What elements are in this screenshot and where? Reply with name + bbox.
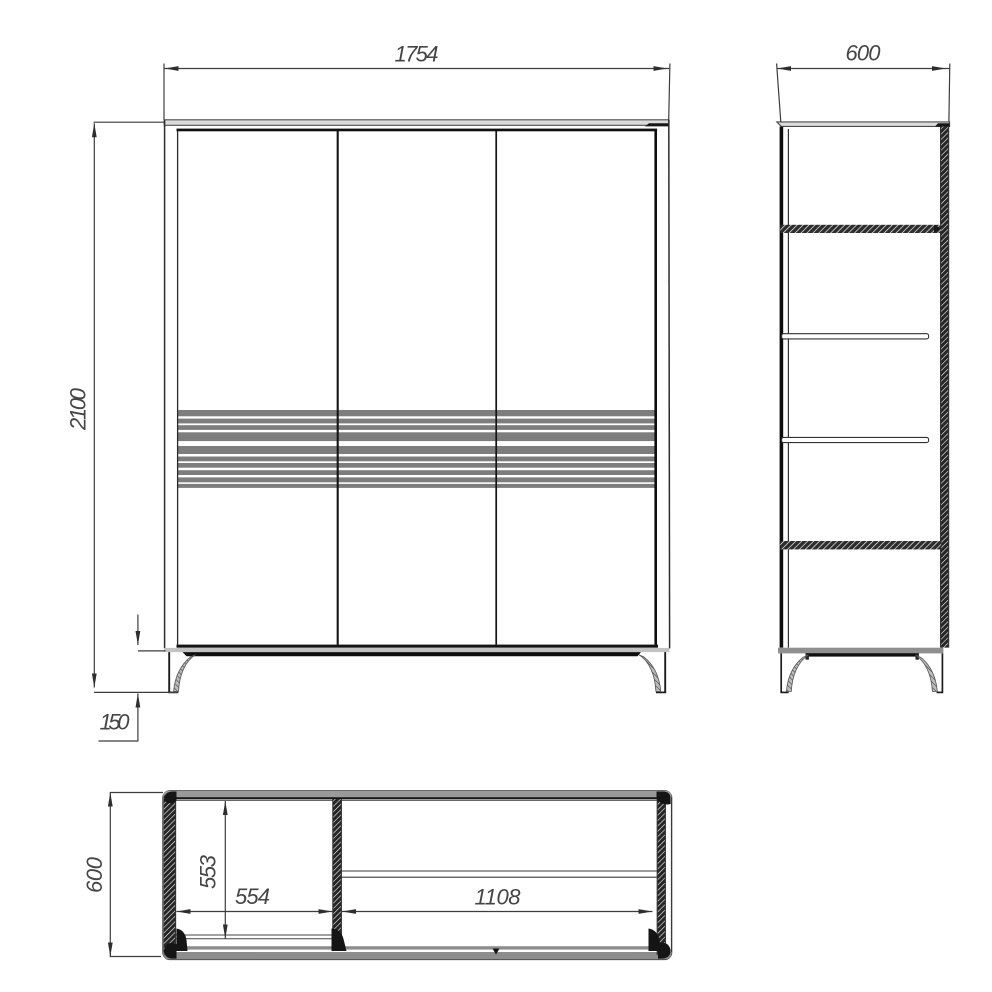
- svg-text:600: 600: [846, 41, 882, 66]
- svg-text:150: 150: [100, 710, 131, 735]
- svg-text:1108: 1108: [475, 885, 522, 910]
- svg-text:600: 600: [82, 856, 107, 893]
- svg-text:2100: 2100: [66, 387, 91, 431]
- svg-text:553: 553: [196, 854, 221, 889]
- svg-text:1754: 1754: [395, 42, 439, 67]
- svg-text:554: 554: [235, 884, 270, 909]
